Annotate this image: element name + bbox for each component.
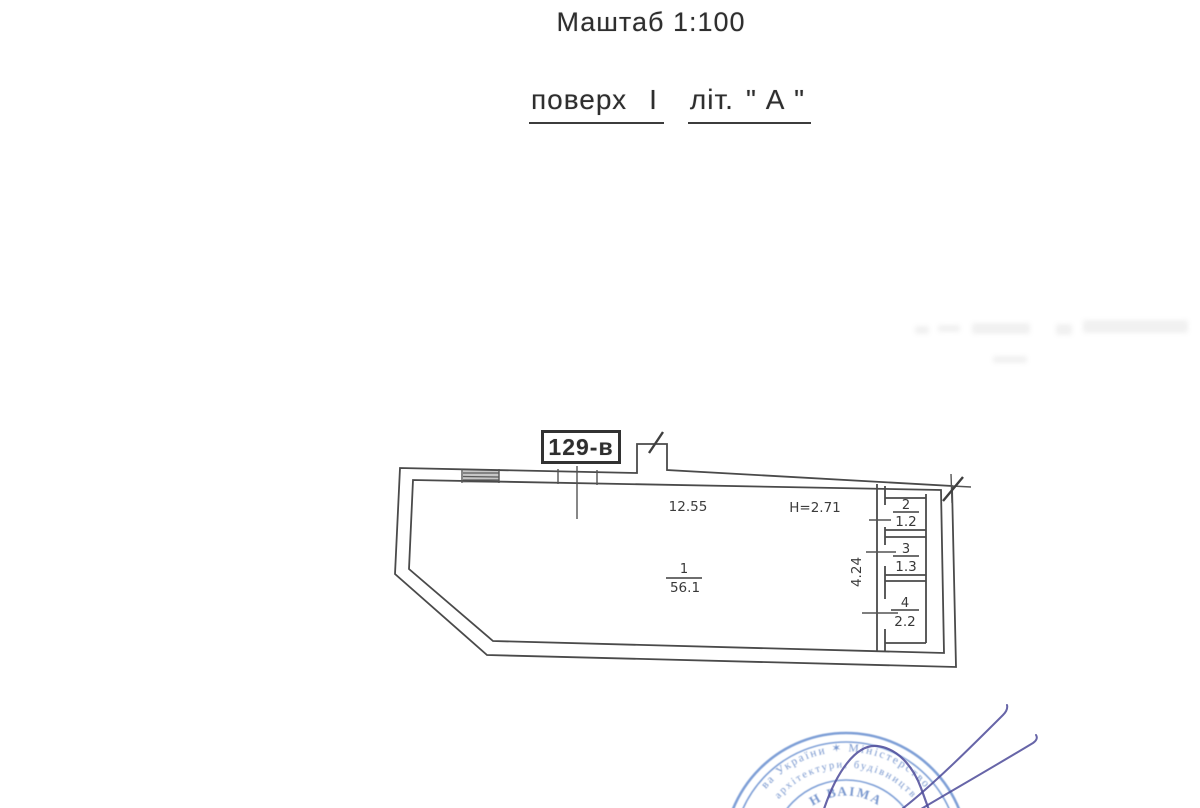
stamp-center-text: Н ВАІМА [806,783,885,808]
room3-area: 1.3 [895,559,916,575]
unit-number-box: 129-в [541,430,621,464]
room4-area: 2.2 [894,614,915,630]
room1-number: 1 [680,562,688,577]
scanned-floorplan-document: Маштаб 1:100 поверхІліт." А " [0,0,1200,808]
floor-plan-drawing: 12.55 Н=2.71 4.24 1 56.1 2 1.2 3 1.3 4 2… [0,0,1200,808]
room3-number: 3 [902,542,910,557]
height-dimension: Н=2.71 [789,500,841,516]
room2-number: 2 [902,498,910,513]
width-dimension: 12.55 [669,499,708,515]
door-ticks [862,520,898,613]
room4-number: 4 [901,596,909,611]
room1-area: 56.1 [670,580,700,596]
official-stamp: ва України ✶ Міністерство архітектури, б… [724,733,968,808]
plan-labels: 12.55 Н=2.71 4.24 1 56.1 2 1.2 3 1.3 4 2… [666,498,919,630]
dimension-tick-protrusion [649,432,663,453]
room2-area: 1.2 [895,514,916,530]
side-dimension: 4.24 [849,557,865,587]
walls [395,432,971,667]
